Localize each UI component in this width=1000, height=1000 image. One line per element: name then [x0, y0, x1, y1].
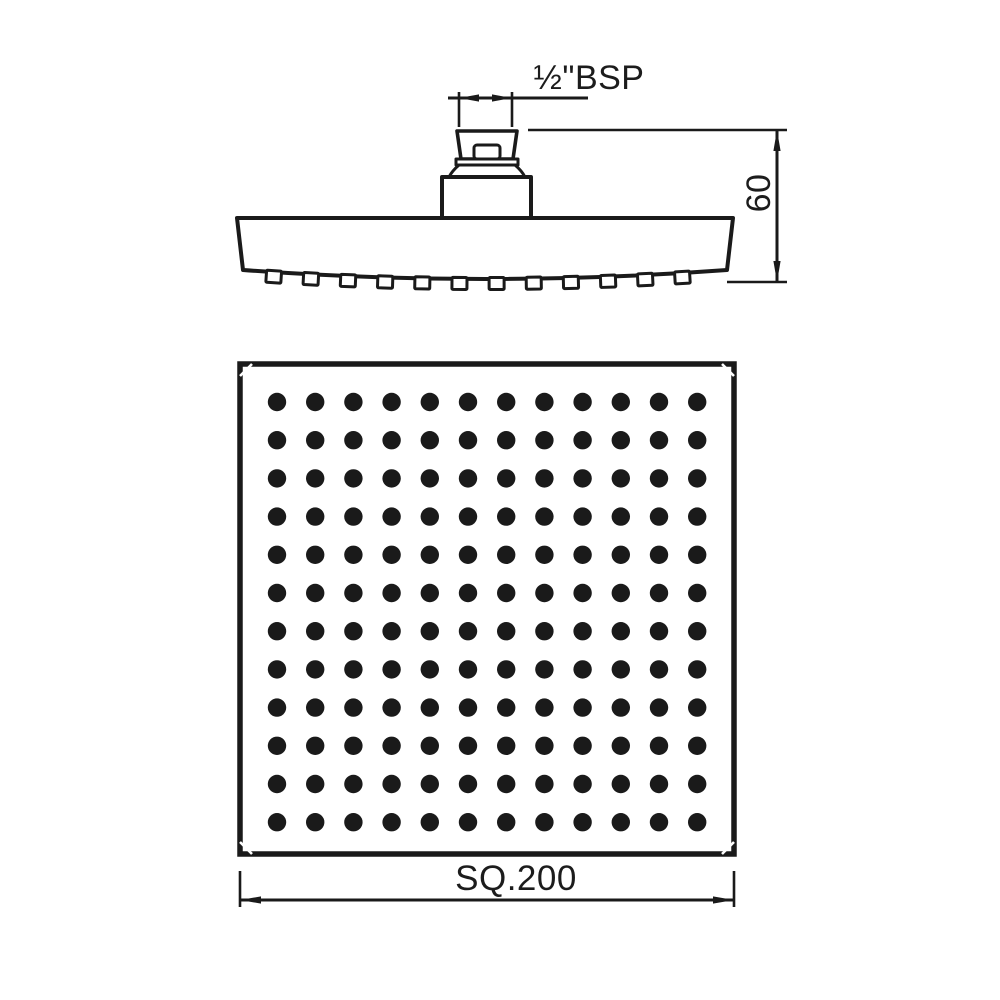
spray-hole: [382, 775, 400, 793]
spray-hole: [459, 737, 477, 755]
spray-hole: [421, 393, 439, 411]
spray-hole: [497, 507, 515, 525]
spray-hole: [306, 813, 324, 831]
spray-hole: [573, 469, 591, 487]
spray-hole: [535, 622, 553, 640]
spray-hole: [535, 469, 553, 487]
spray-hole: [573, 584, 591, 602]
inlet-connector: [442, 131, 531, 218]
spray-hole: [421, 775, 439, 793]
spray-hole: [573, 737, 591, 755]
nozzle: [266, 270, 282, 283]
height-value-label: 60: [740, 174, 778, 213]
thread-arrow-right-icon: [492, 94, 512, 101]
spray-hole: [306, 431, 324, 449]
spray-hole: [612, 775, 630, 793]
spray-hole: [650, 660, 668, 678]
spray-hole: [612, 584, 630, 602]
spray-hole: [535, 507, 553, 525]
spray-hole: [459, 813, 477, 831]
spray-hole: [650, 737, 668, 755]
spray-hole: [650, 431, 668, 449]
spray-hole: [573, 393, 591, 411]
spray-hole: [573, 431, 591, 449]
spray-hole: [612, 507, 630, 525]
height-arrow-down-icon: [773, 261, 780, 282]
spray-hole: [382, 469, 400, 487]
mounting-block: [442, 177, 531, 218]
spray-hole: [459, 660, 477, 678]
spray-hole: [650, 469, 668, 487]
spray-hole: [459, 393, 477, 411]
spray-hole: [688, 737, 706, 755]
thread-arrow-left-icon: [459, 94, 479, 101]
spray-hole: [612, 546, 630, 564]
spray-hole: [650, 813, 668, 831]
spray-hole: [382, 507, 400, 525]
height-label-rotated: 60: [740, 174, 778, 213]
spray-hole: [268, 507, 286, 525]
spray-hole: [421, 469, 439, 487]
spray-hole: [382, 813, 400, 831]
spray-hole: [459, 775, 477, 793]
spray-hole: [421, 813, 439, 831]
spray-hole: [459, 584, 477, 602]
spray-hole: [535, 737, 553, 755]
nozzle: [303, 273, 319, 286]
spray-hole: [421, 622, 439, 640]
spray-hole: [268, 737, 286, 755]
spray-hole: [421, 431, 439, 449]
spray-hole: [459, 622, 477, 640]
spray-hole: [268, 469, 286, 487]
spray-hole: [573, 698, 591, 716]
spray-hole: [382, 393, 400, 411]
spray-hole: [612, 622, 630, 640]
nozzle: [637, 273, 653, 286]
spray-hole: [421, 584, 439, 602]
spray-hole: [382, 622, 400, 640]
spray-hole: [382, 737, 400, 755]
connector-flange: [456, 159, 518, 165]
spray-hole: [688, 393, 706, 411]
spray-hole: [497, 584, 515, 602]
spray-hole: [535, 584, 553, 602]
spray-hole: [688, 546, 706, 564]
spray-hole: [344, 813, 362, 831]
spray-hole: [612, 737, 630, 755]
spray-hole: [612, 813, 630, 831]
spray-hole: [688, 660, 706, 678]
spray-hole: [344, 775, 362, 793]
nozzle: [563, 276, 578, 288]
spray-hole: [344, 546, 362, 564]
spray-hole: [268, 431, 286, 449]
nozzle: [377, 276, 392, 288]
spray-hole: [306, 507, 324, 525]
spray-hole: [421, 698, 439, 716]
spray-hole: [650, 393, 668, 411]
spray-hole: [382, 698, 400, 716]
nozzle: [675, 271, 691, 284]
spray-hole: [268, 660, 286, 678]
width-arrow-left-icon: [240, 896, 261, 903]
spray-hole: [344, 737, 362, 755]
nozzle: [452, 277, 467, 289]
spray-hole: [535, 431, 553, 449]
spray-hole: [421, 737, 439, 755]
spray-hole: [306, 546, 324, 564]
dimension-width: SQ.200: [240, 859, 734, 907]
spray-hole: [650, 546, 668, 564]
spray-hole: [688, 431, 706, 449]
spray-hole: [459, 698, 477, 716]
spray-hole: [573, 507, 591, 525]
spray-hole: [382, 584, 400, 602]
face-view: SQ.200: [240, 364, 734, 907]
spray-hole: [382, 660, 400, 678]
spray-hole: [421, 507, 439, 525]
spray-hole: [573, 622, 591, 640]
spray-hole: [306, 698, 324, 716]
spray-hole: [497, 737, 515, 755]
thread-size-label: ½"BSP: [534, 59, 645, 97]
showerhead-body-profile: [237, 218, 733, 279]
nozzle: [415, 277, 430, 289]
spray-hole: [344, 660, 362, 678]
spray-hole: [688, 584, 706, 602]
spray-hole: [535, 393, 553, 411]
spray-hole: [573, 546, 591, 564]
spray-hole: [306, 660, 324, 678]
spray-hole: [268, 775, 286, 793]
spray-hole: [306, 737, 324, 755]
spray-hole: [344, 584, 362, 602]
spray-hole: [688, 622, 706, 640]
spray-hole: [612, 431, 630, 449]
nozzle: [340, 274, 355, 287]
spray-hole: [497, 622, 515, 640]
spray-hole: [612, 660, 630, 678]
spray-hole: [459, 469, 477, 487]
height-arrow-up-icon: [773, 130, 780, 151]
spray-hole: [535, 698, 553, 716]
spray-hole: [497, 469, 515, 487]
spray-hole: [268, 622, 286, 640]
spray-hole: [497, 775, 515, 793]
spray-hole: [497, 813, 515, 831]
spray-hole: [344, 469, 362, 487]
spray-hole: [421, 546, 439, 564]
spray-hole: [344, 393, 362, 411]
spray-hole: [535, 546, 553, 564]
dimension-thread: ½"BSP: [448, 59, 644, 127]
spray-hole: [688, 698, 706, 716]
spray-hole: [306, 584, 324, 602]
spray-hole: [459, 507, 477, 525]
spray-hole: [612, 469, 630, 487]
spray-hole: [268, 546, 286, 564]
spray-hole: [497, 546, 515, 564]
spray-hole: [650, 775, 668, 793]
spray-hole: [612, 393, 630, 411]
spray-hole: [382, 431, 400, 449]
spray-hole: [306, 469, 324, 487]
spray-hole: [650, 507, 668, 525]
spray-hole: [535, 775, 553, 793]
spray-hole: [459, 431, 477, 449]
spray-hole: [650, 698, 668, 716]
spray-hole: [573, 775, 591, 793]
spray-hole: [497, 660, 515, 678]
spray-hole: [382, 546, 400, 564]
thread-fitting-inner-detail: [474, 145, 500, 159]
spray-hole: [268, 813, 286, 831]
spray-hole: [650, 622, 668, 640]
spray-hole: [688, 775, 706, 793]
spray-hole: [497, 393, 515, 411]
spray-hole: [344, 622, 362, 640]
spray-hole: [612, 698, 630, 716]
spray-hole: [344, 698, 362, 716]
spray-hole: [688, 469, 706, 487]
spray-hole: [344, 507, 362, 525]
spray-hole: [268, 393, 286, 411]
spray-hole: [497, 431, 515, 449]
spray-hole: [268, 584, 286, 602]
spray-hole: [573, 660, 591, 678]
spray-hole: [688, 813, 706, 831]
width-arrow-right-icon: [713, 896, 734, 903]
spray-hole: [535, 813, 553, 831]
spray-hole: [688, 507, 706, 525]
nozzle: [489, 277, 504, 289]
spray-hole: [344, 431, 362, 449]
nozzle: [526, 277, 541, 289]
width-value-label: SQ.200: [455, 859, 577, 898]
spray-hole: [306, 775, 324, 793]
drawing-canvas: ½"BSP: [0, 0, 1000, 1000]
showerhead-technical-drawing: ½"BSP: [0, 0, 1000, 1000]
spray-hole: [573, 813, 591, 831]
spray-hole: [535, 660, 553, 678]
spray-hole: [421, 660, 439, 678]
side-elevation-view: ½"BSP: [237, 59, 787, 290]
spray-hole: [650, 584, 668, 602]
spray-hole: [306, 622, 324, 640]
spray-hole: [306, 393, 324, 411]
spray-hole: [459, 546, 477, 564]
spray-hole: [497, 698, 515, 716]
nozzle: [600, 275, 615, 288]
spray-hole: [268, 698, 286, 716]
